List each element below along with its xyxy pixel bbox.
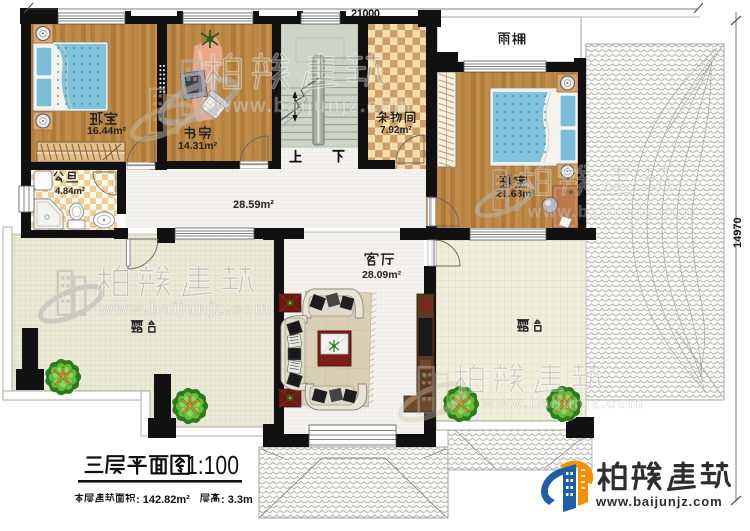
svg-text:1:100: 1:100 [186,450,239,480]
svg-text:: 142.82m²: : 142.82m² [136,494,190,506]
svg-text:: 3.3m: : 3.3m [221,494,253,506]
svg-text:www.baijunjz.com: www.baijunjz.com [527,202,699,221]
svg-text:7.92m²: 7.92m² [380,125,412,136]
svg-text:21000: 21000 [351,8,380,20]
svg-text:www.baijunjz.com: www.baijunjz.com [99,299,271,318]
svg-text:14970: 14970 [732,217,744,248]
svg-text:4.84m²: 4.84m² [55,186,85,197]
svg-text:28.09m²: 28.09m² [362,269,402,281]
svg-text:16.44m²: 16.44m² [87,125,127,137]
svg-text:www.baijunjz.com: www.baijunjz.com [215,95,413,117]
svg-text:14.31m²: 14.31m² [178,140,218,152]
svg-text:www.baijunjz.com: www.baijunjz.com [481,395,644,412]
svg-text:28.59m²: 28.59m² [233,199,274,211]
svg-text:www.baijunjz.com: www.baijunjz.com [595,494,723,509]
